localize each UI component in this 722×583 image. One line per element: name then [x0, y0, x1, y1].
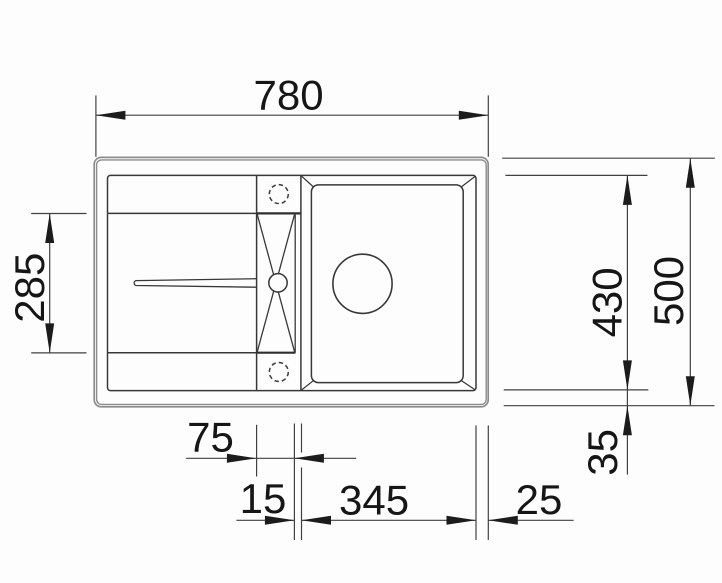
svg-text:15: 15 — [240, 475, 287, 522]
svg-text:285: 285 — [6, 253, 53, 323]
svg-text:345: 345 — [339, 477, 409, 524]
svg-text:500: 500 — [645, 256, 692, 326]
svg-text:25: 25 — [516, 476, 563, 523]
svg-text:430: 430 — [583, 267, 630, 337]
svg-text:75: 75 — [187, 413, 234, 460]
svg-text:780: 780 — [254, 72, 324, 119]
svg-text:35: 35 — [579, 429, 626, 476]
